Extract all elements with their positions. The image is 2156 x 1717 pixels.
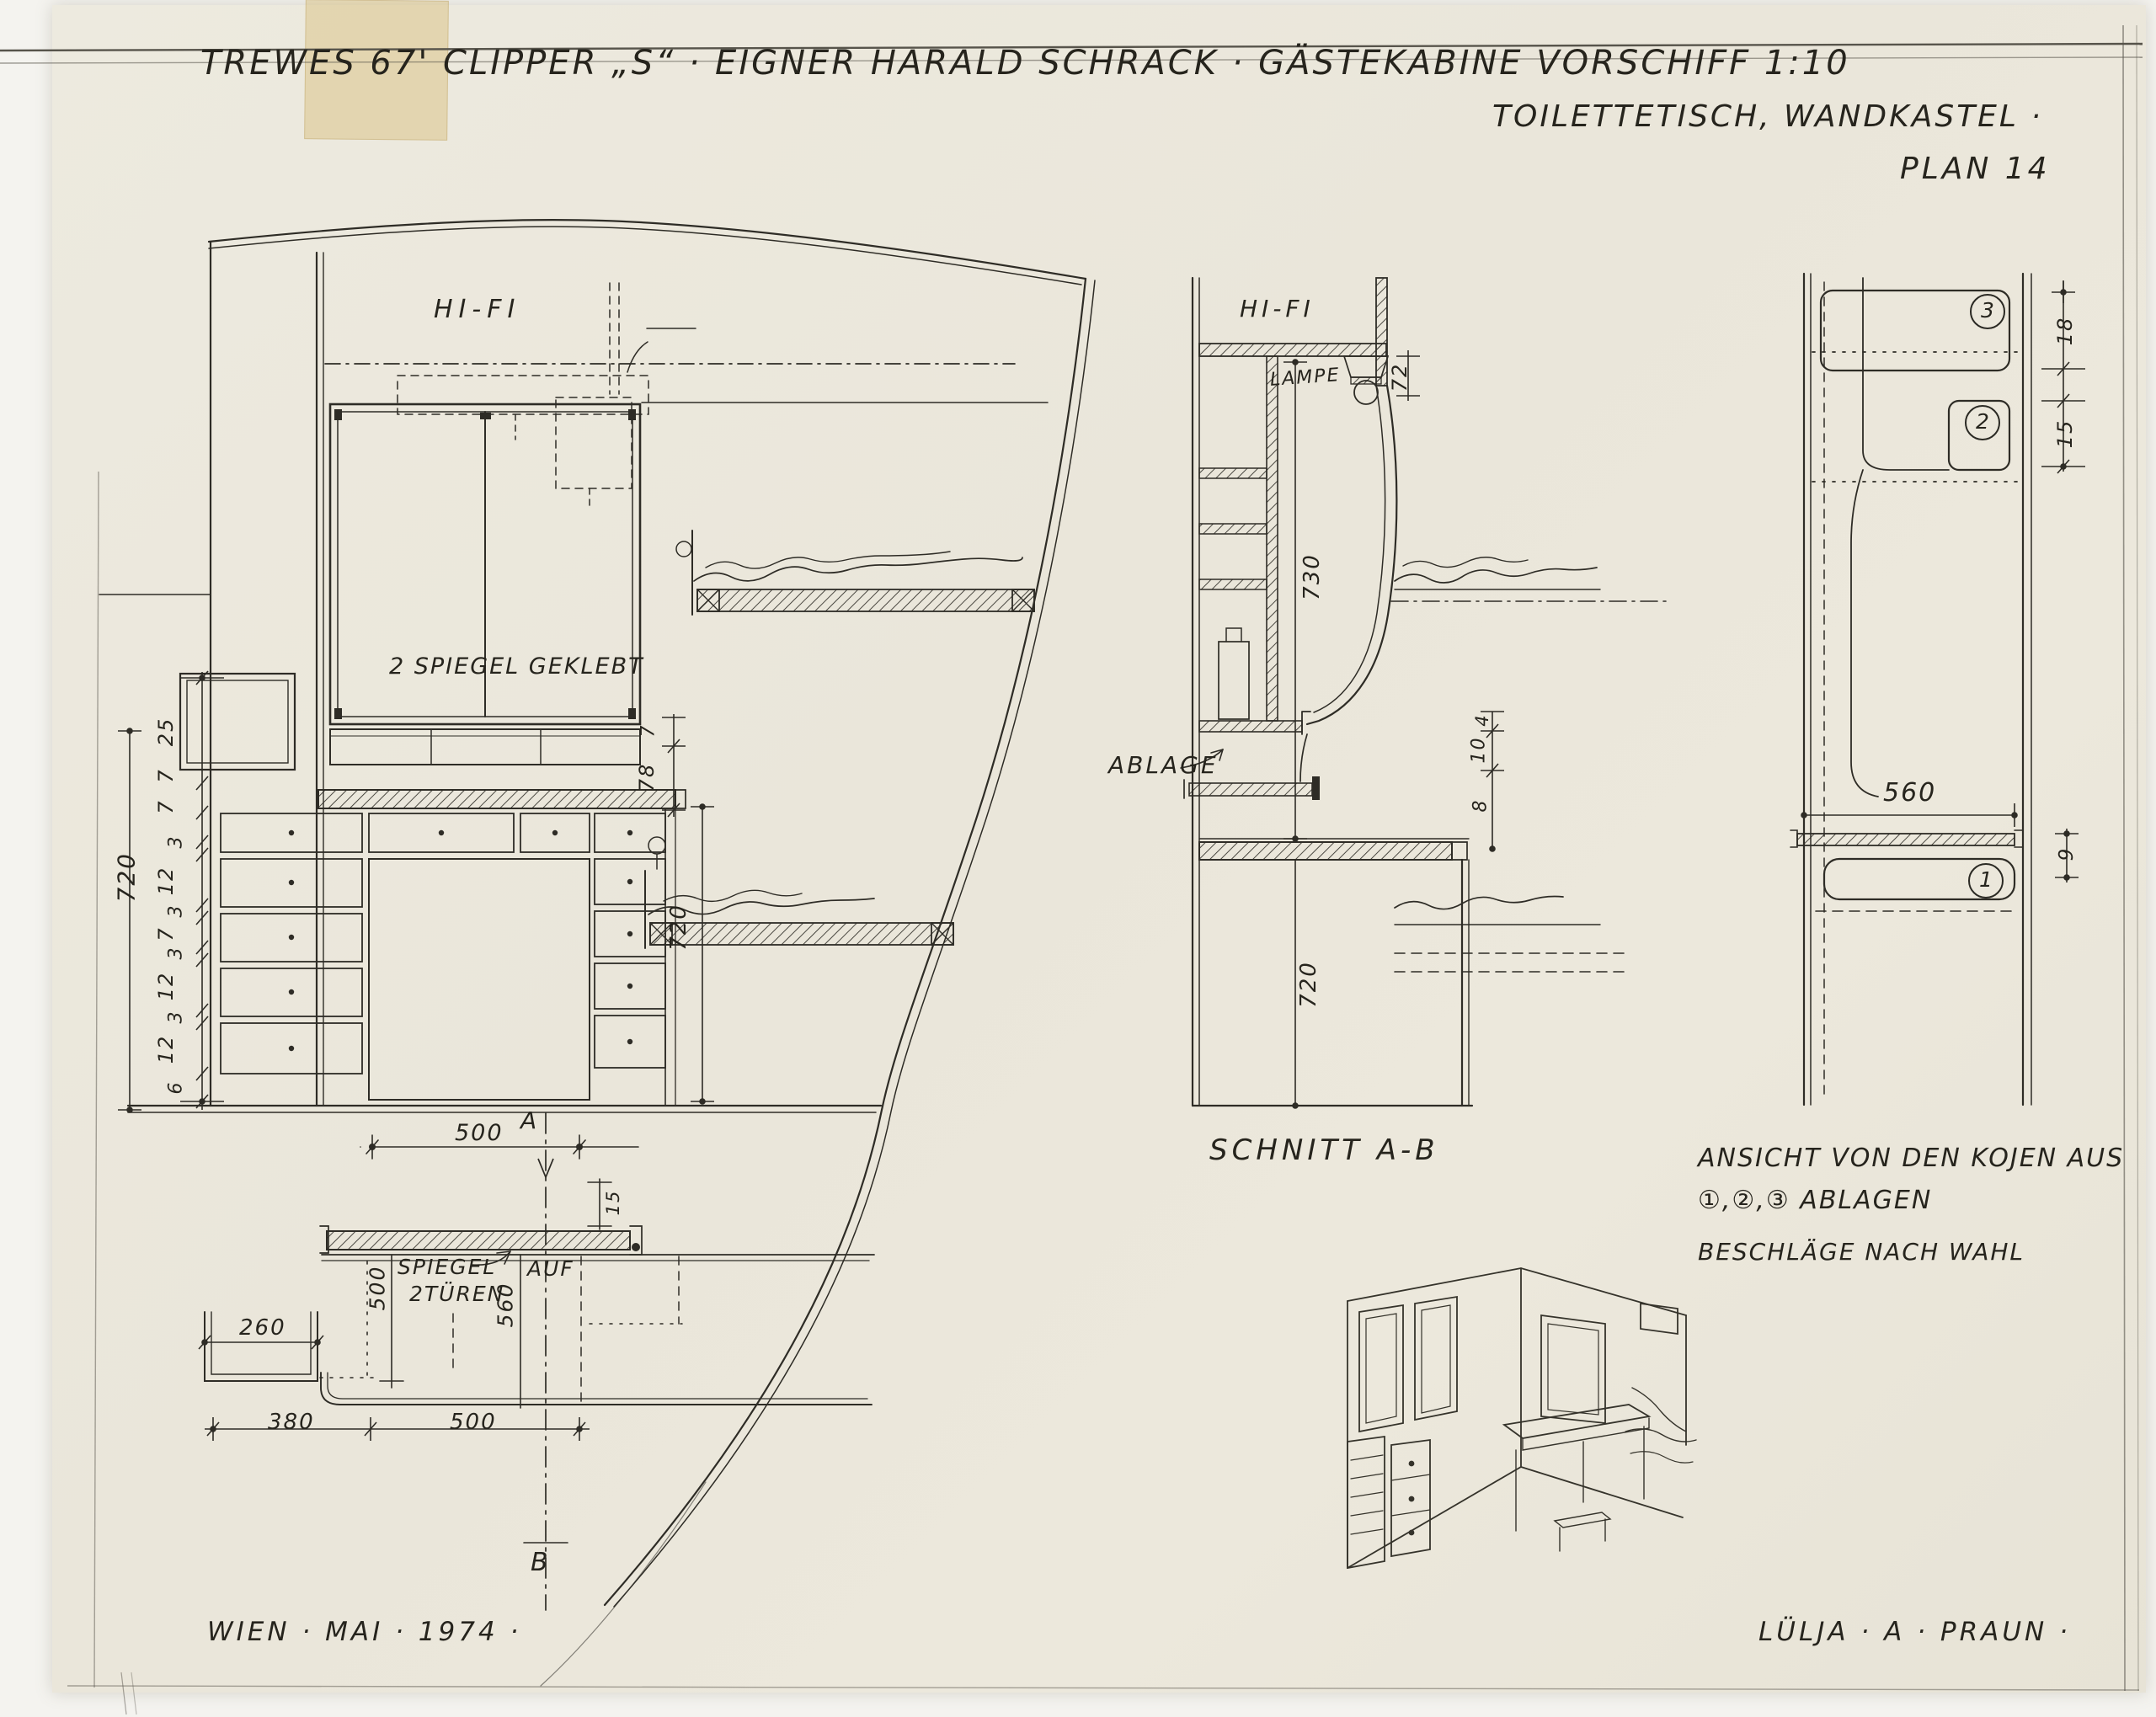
front-elevation-dimensions — [118, 671, 714, 1112]
drawing-title: TREWES 67' CLIPPER „S“ · EIGNER HARALD S… — [200, 44, 1850, 83]
dim-560-mid: 560 — [494, 1282, 518, 1329]
dim-7: 7 — [638, 707, 659, 755]
dim-78: 78 — [635, 754, 659, 801]
shelf-badge-1: 1 — [1968, 863, 2004, 898]
author-signature: LÜLJA · A · PRAUN · — [1758, 1617, 2071, 1647]
mirror-note-label: 2 SPIEGEL GEKLEBT — [389, 653, 644, 680]
dim-unit-720: 720 — [666, 904, 691, 951]
dim-720-section: 720 — [1296, 961, 1321, 1008]
dim-260: 260 — [239, 1315, 286, 1341]
dim-chain-6: 6 — [166, 1064, 187, 1112]
place-date: WIEN · MAI · 1974 · — [207, 1617, 521, 1647]
perspective-sketch — [1347, 1268, 1696, 1568]
dim-total-720: 720 — [113, 856, 141, 903]
dim-72: 72 — [1388, 354, 1412, 401]
dim-8: 8 — [1470, 782, 1492, 829]
spiegel-label-2: 2TÜREN — [409, 1282, 504, 1306]
dim-15-right: 15 — [2053, 410, 2077, 457]
ablage-label: ABLAGE — [1108, 751, 1219, 779]
dim-9: 9 — [2056, 830, 2078, 877]
plan-number: PLAN 14 — [1900, 152, 2051, 186]
berth-view-caption-1: ANSICHT VON DEN KOJEN AUS — [1698, 1144, 2124, 1173]
section-linework — [1181, 278, 1666, 1106]
dim-500-left: 500 — [366, 1265, 390, 1312]
plan-view-linework — [205, 1113, 874, 1610]
dim-560: 560 — [1883, 778, 1936, 808]
dim-730: 730 — [1299, 553, 1325, 600]
blueprint-linework — [0, 0, 2156, 1717]
spiegel-label-1: SPIEGEL — [398, 1255, 496, 1279]
section-marker-a: A — [520, 1106, 538, 1134]
paper-edge-lines — [0, 25, 2143, 1714]
dim-380: 380 — [268, 1410, 315, 1435]
blueprint-sheet: TREWES 67' CLIPPER „S“ · EIGNER HARALD S… — [0, 0, 2156, 1717]
auf-label: AUF — [527, 1256, 574, 1281]
dim-18: 18 — [2053, 307, 2077, 355]
drawing-subtitle: TOILETTETISCH, WANDKASTEL · — [1492, 99, 2043, 134]
dim-10: 10 — [1469, 727, 1490, 774]
dim-500-top: 500 — [455, 1120, 504, 1146]
section-caption: SCHNITT A-B — [1209, 1133, 1439, 1167]
berth-view-linework — [1790, 274, 2031, 1105]
dim-chain-25: 25 — [154, 708, 178, 755]
dim-500-bottom: 500 — [450, 1410, 497, 1435]
dim-15-plan: 15 — [603, 1179, 623, 1226]
front-hifi-label: HI-FI — [434, 295, 520, 324]
fittings-note: BESCHLÄGE NACH WAHL — [1698, 1238, 2025, 1266]
front-elevation-linework — [99, 220, 1095, 1686]
shelf-badge-2: 2 — [1965, 405, 2000, 440]
section-marker-b: B — [531, 1548, 550, 1577]
berth-view-caption-2: ①,②,③ ABLAGEN — [1698, 1186, 1932, 1215]
section-hifi-label: HI-FI — [1240, 295, 1315, 323]
shelf-badge-3: 3 — [1970, 294, 2005, 329]
drawer-fronts — [221, 813, 665, 1100]
